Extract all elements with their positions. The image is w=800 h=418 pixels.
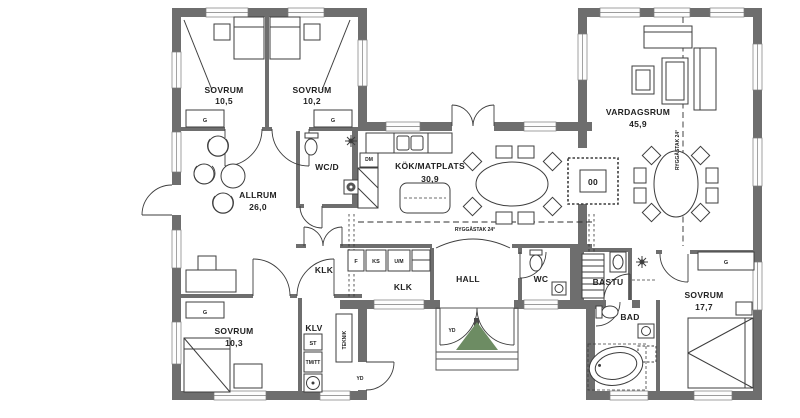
window — [288, 8, 324, 17]
window — [654, 8, 690, 17]
shower-icon — [636, 256, 648, 268]
wardrobe-label: G — [203, 118, 207, 124]
room-label-sovrum-3: SOVRUM — [684, 290, 723, 300]
room-area-sovrum-4: 10,3 — [225, 338, 243, 348]
floor-plan-canvas: SOVRUM 10,5 SOVRUM 10,2 ALLRUM 26,0 WC/D… — [0, 0, 800, 418]
wardrobe-label: G — [724, 260, 728, 266]
room-label-klv: KLV — [305, 323, 322, 333]
room-area-kok: 30,9 — [421, 174, 439, 184]
furniture-bastu — [582, 252, 656, 298]
washer-dryer-label: TM/TT — [306, 360, 321, 366]
window — [172, 230, 181, 268]
entrance-porch — [436, 308, 518, 370]
window — [753, 138, 762, 186]
ridge-label-vertical: RYGGÅSTAK 24° — [674, 130, 681, 170]
ridge-label-horizontal: RYGGÅSTAK 24° — [455, 226, 495, 233]
room-label-wcd: WC/D — [315, 162, 339, 172]
furniture-allrum — [186, 136, 245, 292]
fridge-label: KS — [372, 259, 380, 265]
wardrobe-label: G — [203, 310, 207, 316]
oven-micro-label: U/M — [394, 259, 403, 265]
window — [206, 8, 248, 17]
appliance-cabinets — [348, 250, 430, 271]
window — [753, 44, 762, 90]
room-label-bastu: BASTU — [593, 277, 624, 287]
furniture-sovrum-10-3 — [184, 302, 262, 392]
floor-plan-drawing: SOVRUM 10,5 SOVRUM 10,2 ALLRUM 26,0 WC/D… — [0, 0, 800, 418]
room-area-allrum: 26,0 — [249, 202, 267, 212]
room-label-klk-1: KLK — [315, 265, 334, 275]
room-label-hall: HALL — [456, 274, 480, 284]
tree-canopy — [456, 322, 498, 350]
room-area-vardagsrum: 45,9 — [629, 119, 647, 129]
room-label-sovrum-1: SOVRUM — [204, 85, 243, 95]
window — [578, 34, 587, 80]
room-label-sovrum-4: SOVRUM — [214, 326, 253, 336]
room-label-kok: KÖK/MATPLATS — [395, 161, 465, 171]
tree-icon — [456, 318, 498, 350]
teknik-label: TEKNIK — [342, 330, 348, 349]
room-area-sovrum-3: 17,7 — [695, 302, 713, 312]
room-label-wc: WC — [534, 274, 549, 284]
window — [320, 391, 350, 400]
cleaning-closet-label: ST — [309, 341, 317, 347]
room-area-sovrum-1: 10,5 — [215, 96, 233, 106]
exterior-door-label: YD — [449, 328, 456, 334]
room-label-klk-2: KLK — [394, 282, 413, 292]
window — [524, 122, 556, 131]
window — [600, 8, 640, 17]
window — [172, 322, 181, 364]
room-label-vardagsrum: VARDAGSRUM — [606, 107, 670, 117]
fireplace-label: 00 — [588, 177, 598, 187]
furniture-kitchen — [358, 133, 562, 224]
room-label-bad: BAD — [620, 312, 639, 322]
window — [524, 300, 558, 309]
window — [172, 132, 181, 172]
room-label-sovrum-2: SOVRUM — [292, 85, 331, 95]
window — [358, 40, 367, 86]
window — [386, 122, 420, 131]
window — [172, 52, 181, 88]
furniture-sovrum-17 — [688, 252, 754, 388]
wardrobe-label: G — [331, 118, 335, 124]
dishwasher-label: DM — [365, 157, 373, 163]
pantry-shelving — [358, 168, 378, 208]
window — [374, 300, 424, 309]
room-label-allrum: ALLRUM — [239, 190, 277, 200]
window — [710, 8, 744, 17]
window — [610, 391, 648, 400]
exterior-door-label: YD — [357, 376, 364, 382]
window — [694, 391, 732, 400]
room-area-sovrum-2: 10,2 — [303, 96, 321, 106]
